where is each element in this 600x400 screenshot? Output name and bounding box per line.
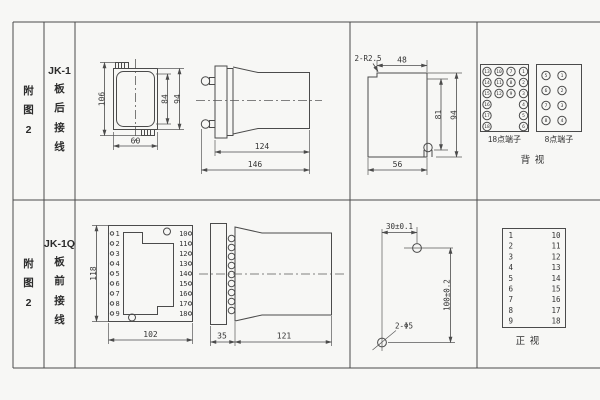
terminal-number: 11 xyxy=(551,242,560,251)
terminal-number: 14 xyxy=(551,274,561,283)
terminal-number: 17 xyxy=(484,113,490,119)
dim-102: 102 xyxy=(143,330,158,339)
terminal-dot xyxy=(188,312,191,315)
terminal-number: 16 xyxy=(551,295,561,304)
relay-body xyxy=(235,227,332,321)
terminal-screw xyxy=(228,253,235,260)
rear-terminal-blocks: 13 10 7 1 14 11 8 2 15 12 9 3 16 4 17 5 … xyxy=(481,65,582,167)
bezel xyxy=(227,69,233,136)
terminal-number: 1 xyxy=(522,69,525,75)
terminal-number: 8 xyxy=(509,306,514,315)
terminal-number: 6 xyxy=(509,285,514,294)
front-panel-view: 1 2 3 4 5 6 7 8 9 10 11 12 13 14 15 16 1… xyxy=(89,226,193,345)
terminal-dot xyxy=(110,282,113,285)
terminal-number: 15 xyxy=(179,280,187,288)
terminal-number: 15 xyxy=(484,91,490,97)
terminal-number: 7 xyxy=(545,103,548,109)
dim-56: 56 xyxy=(393,160,403,169)
terminal-screw xyxy=(228,280,235,287)
terminal-number: 9 xyxy=(116,310,120,318)
terminal-tabs xyxy=(116,63,155,136)
row2-figure-cell: 附 图 2 xyxy=(13,200,44,368)
terminal-number: 18 xyxy=(179,310,187,318)
dim-35: 35 xyxy=(217,332,227,341)
front-view-label: 正 视 xyxy=(516,335,541,347)
table-left-column: 1 2 3 4 5 6 7 8 9 xyxy=(509,231,514,326)
terminal-number: 3 xyxy=(522,91,525,97)
relay-front-outline xyxy=(124,233,174,315)
terminal-number: 6 xyxy=(522,124,525,130)
terminal-number: 7 xyxy=(509,295,514,304)
terminal-number: 12 xyxy=(179,250,187,258)
extension-lines xyxy=(100,63,184,151)
front-terminals-right: 10 11 12 13 14 15 16 17 18 xyxy=(179,230,192,318)
terminal-number: 18 xyxy=(551,317,561,326)
dim-121: 121 xyxy=(277,332,292,341)
terminal-number: 16 xyxy=(179,290,187,298)
terminal-number: 12 xyxy=(496,91,502,97)
terminal-screw xyxy=(228,298,235,305)
terminal-screw xyxy=(228,289,235,296)
terminal-dot xyxy=(110,232,113,235)
terminal-dot xyxy=(110,272,113,275)
terminal-number: 2 xyxy=(116,240,120,248)
terminal-number: 4 xyxy=(116,260,120,268)
model-label: JK-1 xyxy=(48,65,71,77)
drill-plan-view: 30±0.1 100±0.2 2-Φ5 xyxy=(373,222,456,351)
terminal-dot xyxy=(110,252,113,255)
terminal-number: 3 xyxy=(561,103,564,109)
front-terminal-table: 1 2 3 4 5 6 7 8 9 10 11 12 13 14 15 16 1… xyxy=(503,229,566,348)
terminal-number: 5 xyxy=(522,113,525,119)
terminal-number: 4 xyxy=(561,118,564,124)
terminal-dot xyxy=(188,282,191,285)
terminal-screw xyxy=(228,244,235,251)
block18-label: 18点端子 xyxy=(488,134,521,144)
wiring-type-label: 板 前 接 线 xyxy=(54,253,65,331)
figure-label: 附 图 2 xyxy=(23,255,34,313)
dim-48: 48 xyxy=(397,56,407,65)
terminal-number: 14 xyxy=(179,270,187,278)
terminal-number: 18 xyxy=(484,124,490,130)
terminal-number: 7 xyxy=(116,290,120,298)
drawing-canvas: 106 84 94 60 124 146 2-R2.5 48 81 94 56 xyxy=(0,0,600,400)
row1-figure-cell: 附 图 2 xyxy=(13,22,44,200)
dim-118: 118 xyxy=(89,266,98,281)
terminal-dot xyxy=(188,232,191,235)
terminal-screw xyxy=(201,120,209,128)
rear-panel-view: 106 84 94 60 xyxy=(97,59,184,150)
block8-label: 8点端子 xyxy=(545,134,573,144)
rear-side-view: 124 146 xyxy=(196,66,322,174)
terminal-number: 10 xyxy=(179,230,187,238)
front-side-view: 35 121 xyxy=(199,224,345,347)
terminal-number: 15 xyxy=(551,285,560,294)
terminal-number: 2 xyxy=(561,88,564,94)
mounting-hole xyxy=(129,314,136,321)
dim-124: 124 xyxy=(255,142,270,151)
terminal-screw xyxy=(228,271,235,278)
dim-81: 81 xyxy=(434,110,443,120)
terminal-number: 13 xyxy=(484,69,490,75)
dim-94: 94 xyxy=(173,94,182,104)
terminal-circles-8: 5 1 6 2 7 3 8 4 xyxy=(542,71,566,124)
terminal-number: 8 xyxy=(116,300,120,308)
latch-slot-hole xyxy=(424,143,432,151)
terminal-number: 9 xyxy=(509,317,514,326)
holes-callout: 2-Φ5 xyxy=(395,322,413,331)
terminal-number: 10 xyxy=(496,69,502,75)
model-label: JK-1Q xyxy=(44,238,75,250)
terminal-number: 3 xyxy=(116,250,120,258)
terminal-number: 11 xyxy=(496,80,502,86)
terminal-number: 6 xyxy=(545,88,548,94)
terminal-dot xyxy=(110,312,113,315)
extension-lines xyxy=(368,60,462,175)
dim-94: 94 xyxy=(449,110,458,120)
terminal-number: 1 xyxy=(561,73,564,79)
rear-view-label: 背 视 xyxy=(521,154,546,166)
row1-model-cell: JK-1 板 后 接 线 xyxy=(44,22,75,200)
terminal-dot xyxy=(188,252,191,255)
terminal-dot xyxy=(110,262,113,265)
terminal-number: 6 xyxy=(116,280,120,288)
terminal-number: 4 xyxy=(509,263,514,272)
terminal-number: 11 xyxy=(179,240,187,248)
dim-84: 84 xyxy=(161,94,170,104)
wiring-type-label: 板 后 接 线 xyxy=(54,80,65,158)
terminal-screw xyxy=(228,235,235,242)
terminal-number: 16 xyxy=(484,102,490,108)
terminal-block-8 xyxy=(537,65,582,132)
terminal-number: 5 xyxy=(116,270,120,278)
technical-drawing-sheet: 106 84 94 60 124 146 2-R2.5 48 81 94 56 xyxy=(0,0,600,400)
terminal-screw xyxy=(201,77,209,85)
radius-callout: 2-R2.5 xyxy=(354,54,381,63)
terminal-number: 3 xyxy=(509,252,514,261)
terminal-number: 1 xyxy=(509,231,514,240)
front-terminals-left: 1 2 3 4 5 6 7 8 9 xyxy=(110,230,119,318)
terminal-number: 5 xyxy=(545,73,548,79)
table-right-column: 10 11 12 13 14 15 16 17 18 xyxy=(551,231,561,326)
terminal-dot xyxy=(110,302,113,305)
terminal-screw-stack xyxy=(228,235,235,314)
terminal-number: 5 xyxy=(509,274,514,283)
terminal-number: 9 xyxy=(510,91,513,97)
terminal-number: 17 xyxy=(179,300,187,308)
terminal-circles-18: 13 10 7 1 14 11 8 2 15 12 9 3 16 4 17 5 … xyxy=(483,67,528,130)
terminal-dot xyxy=(188,272,191,275)
terminal-plate xyxy=(215,66,227,138)
terminal-number: 13 xyxy=(551,263,560,272)
terminal-number: 2 xyxy=(522,80,525,86)
terminal-dot xyxy=(188,292,191,295)
hole-leader-line xyxy=(373,331,397,351)
terminal-dot xyxy=(188,262,191,265)
dim-30: 30±0.1 xyxy=(386,222,413,231)
terminal-number: 7 xyxy=(510,69,513,75)
terminal-number: 8 xyxy=(510,80,513,86)
terminal-number: 2 xyxy=(509,242,514,251)
cutout-outline xyxy=(368,73,427,157)
dim-100: 100±0.2 xyxy=(442,279,451,311)
terminal-number: 4 xyxy=(522,102,525,108)
terminal-number: 10 xyxy=(551,231,561,240)
terminal-dot xyxy=(110,242,113,245)
terminal-dot xyxy=(188,302,191,305)
terminal-number: 12 xyxy=(551,252,560,261)
terminal-number: 1 xyxy=(116,230,120,238)
screw-shaft xyxy=(210,121,216,128)
dim-106: 106 xyxy=(97,92,106,107)
terminal-number: 14 xyxy=(484,80,490,86)
dim-146: 146 xyxy=(248,160,263,169)
figure-label: 附 图 2 xyxy=(23,82,34,140)
terminal-number: 13 xyxy=(179,260,187,268)
extension-lines xyxy=(211,316,332,346)
cutout-view: 2-R2.5 48 81 94 56 xyxy=(354,54,462,175)
dim-60: 60 xyxy=(131,137,141,146)
terminal-number: 8 xyxy=(545,118,548,124)
mounting-hole xyxy=(164,228,171,235)
terminal-number: 17 xyxy=(551,306,560,315)
terminal-dot xyxy=(188,242,191,245)
terminal-dot xyxy=(110,292,113,295)
terminal-screw xyxy=(228,262,235,269)
screw-shaft xyxy=(210,78,216,85)
row2-model-cell: JK-1Q 板 前 接 线 xyxy=(44,200,75,368)
terminal-screw xyxy=(228,307,235,314)
